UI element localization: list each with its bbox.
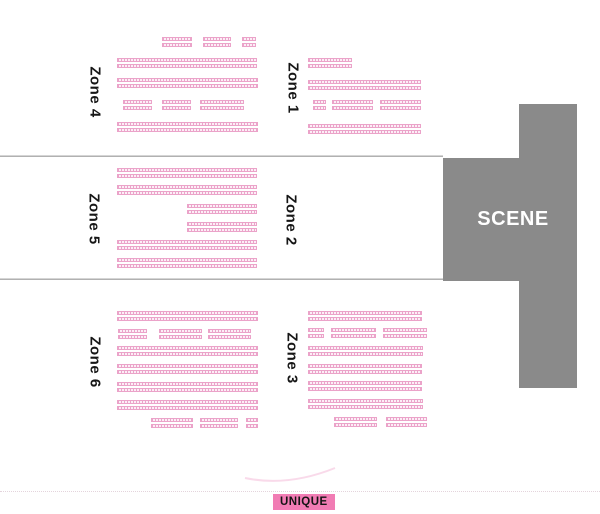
seat-row-zone-3[interactable] bbox=[308, 364, 422, 374]
seat-row-zone-3[interactable] bbox=[308, 346, 423, 356]
seat-row-zone-6[interactable] bbox=[117, 382, 258, 392]
seat-row-zone-5[interactable] bbox=[117, 240, 257, 250]
zone-divider bbox=[0, 155, 443, 157]
seat-row-zone-1[interactable] bbox=[332, 100, 373, 110]
seat-row-zone-4[interactable] bbox=[117, 58, 257, 68]
seat-row-zone-5[interactable] bbox=[187, 204, 257, 214]
zone-label-zone-4: Zone 4 bbox=[87, 66, 104, 117]
seat-row-zone-4[interactable] bbox=[117, 78, 258, 88]
seat-row-zone-5[interactable] bbox=[187, 222, 257, 232]
seat-row-zone-6[interactable] bbox=[117, 364, 258, 374]
seat-row-zone-6[interactable] bbox=[117, 346, 258, 356]
seat-row-zone-4[interactable] bbox=[200, 100, 244, 110]
seat-row-zone-6[interactable] bbox=[151, 418, 193, 428]
zone-label-zone-3: Zone 3 bbox=[284, 332, 301, 383]
seat-row-zone-3[interactable] bbox=[308, 381, 422, 391]
legend-separator-line bbox=[0, 491, 600, 492]
seat-row-zone-5[interactable] bbox=[117, 185, 257, 195]
seat-row-zone-1[interactable] bbox=[308, 80, 421, 90]
zone-label-zone-6: Zone 6 bbox=[87, 336, 104, 387]
seat-row-zone-3[interactable] bbox=[334, 417, 377, 427]
seat-row-zone-6[interactable] bbox=[117, 311, 258, 321]
venue-seat-map: Zone 4Zone 1Zone 5Zone 2Zone 6Zone 3 SCE… bbox=[0, 0, 600, 514]
seat-row-zone-6[interactable] bbox=[117, 400, 258, 410]
seat-row-zone-3[interactable] bbox=[308, 399, 423, 409]
zone-divider bbox=[0, 278, 443, 280]
seat-row-zone-3[interactable] bbox=[331, 328, 376, 338]
zone-label-zone-1: Zone 1 bbox=[285, 62, 302, 113]
seat-row-zone-5[interactable] bbox=[117, 258, 257, 268]
seat-row-zone-4[interactable] bbox=[117, 122, 258, 132]
seat-row-zone-3[interactable] bbox=[383, 328, 427, 338]
seat-row-zone-1[interactable] bbox=[313, 100, 326, 110]
seat-row-zone-3[interactable] bbox=[386, 417, 427, 427]
seat-row-zone-6[interactable] bbox=[200, 418, 238, 428]
seat-row-zone-4[interactable] bbox=[242, 37, 256, 47]
scene-back-wall bbox=[519, 104, 577, 388]
seat-row-zone-5[interactable] bbox=[117, 168, 257, 178]
seat-row-zone-1[interactable] bbox=[380, 100, 421, 110]
seat-row-zone-4[interactable] bbox=[203, 37, 231, 47]
seat-row-zone-4[interactable] bbox=[162, 37, 192, 47]
decorative-arc bbox=[240, 463, 340, 489]
category-badge-unique[interactable]: UNIQUE bbox=[273, 494, 335, 510]
scene-label: SCENE bbox=[443, 208, 583, 231]
seat-row-zone-4[interactable] bbox=[123, 100, 152, 110]
seat-row-zone-6[interactable] bbox=[246, 418, 258, 428]
zone-label-zone-5: Zone 5 bbox=[86, 193, 103, 244]
seat-row-zone-6[interactable] bbox=[118, 329, 147, 339]
seat-row-zone-6[interactable] bbox=[208, 329, 251, 339]
seat-row-zone-1[interactable] bbox=[308, 124, 421, 134]
seat-row-zone-3[interactable] bbox=[308, 328, 324, 338]
seat-row-zone-1[interactable] bbox=[308, 58, 352, 68]
seat-row-zone-3[interactable] bbox=[308, 311, 422, 321]
seat-row-zone-6[interactable] bbox=[159, 329, 202, 339]
zone-label-zone-2: Zone 2 bbox=[283, 194, 300, 245]
seat-row-zone-4[interactable] bbox=[162, 100, 191, 110]
